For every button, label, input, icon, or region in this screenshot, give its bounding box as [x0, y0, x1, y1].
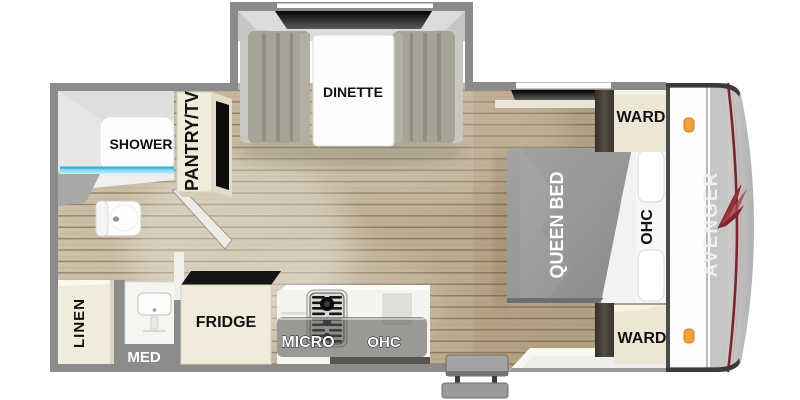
svg-text:SHOWER: SHOWER	[110, 136, 173, 152]
svg-text:MICRO: MICRO	[281, 334, 334, 351]
svg-text:AVENGER: AVENGER	[701, 171, 722, 278]
svg-text:LINEN: LINEN	[71, 298, 88, 348]
svg-text:WARD: WARD	[618, 330, 667, 347]
svg-text:WARD: WARD	[617, 109, 666, 126]
svg-text:OHC: OHC	[367, 334, 401, 351]
svg-text:PANTRY/TV: PANTRY/TV	[182, 91, 202, 191]
svg-text:FRIDGE: FRIDGE	[196, 314, 257, 331]
svg-text:DINETTE: DINETTE	[323, 84, 383, 100]
svg-text:MED: MED	[127, 349, 161, 366]
svg-text:QUEEN BED: QUEEN BED	[547, 171, 567, 278]
svg-text:OHC: OHC	[639, 209, 656, 245]
